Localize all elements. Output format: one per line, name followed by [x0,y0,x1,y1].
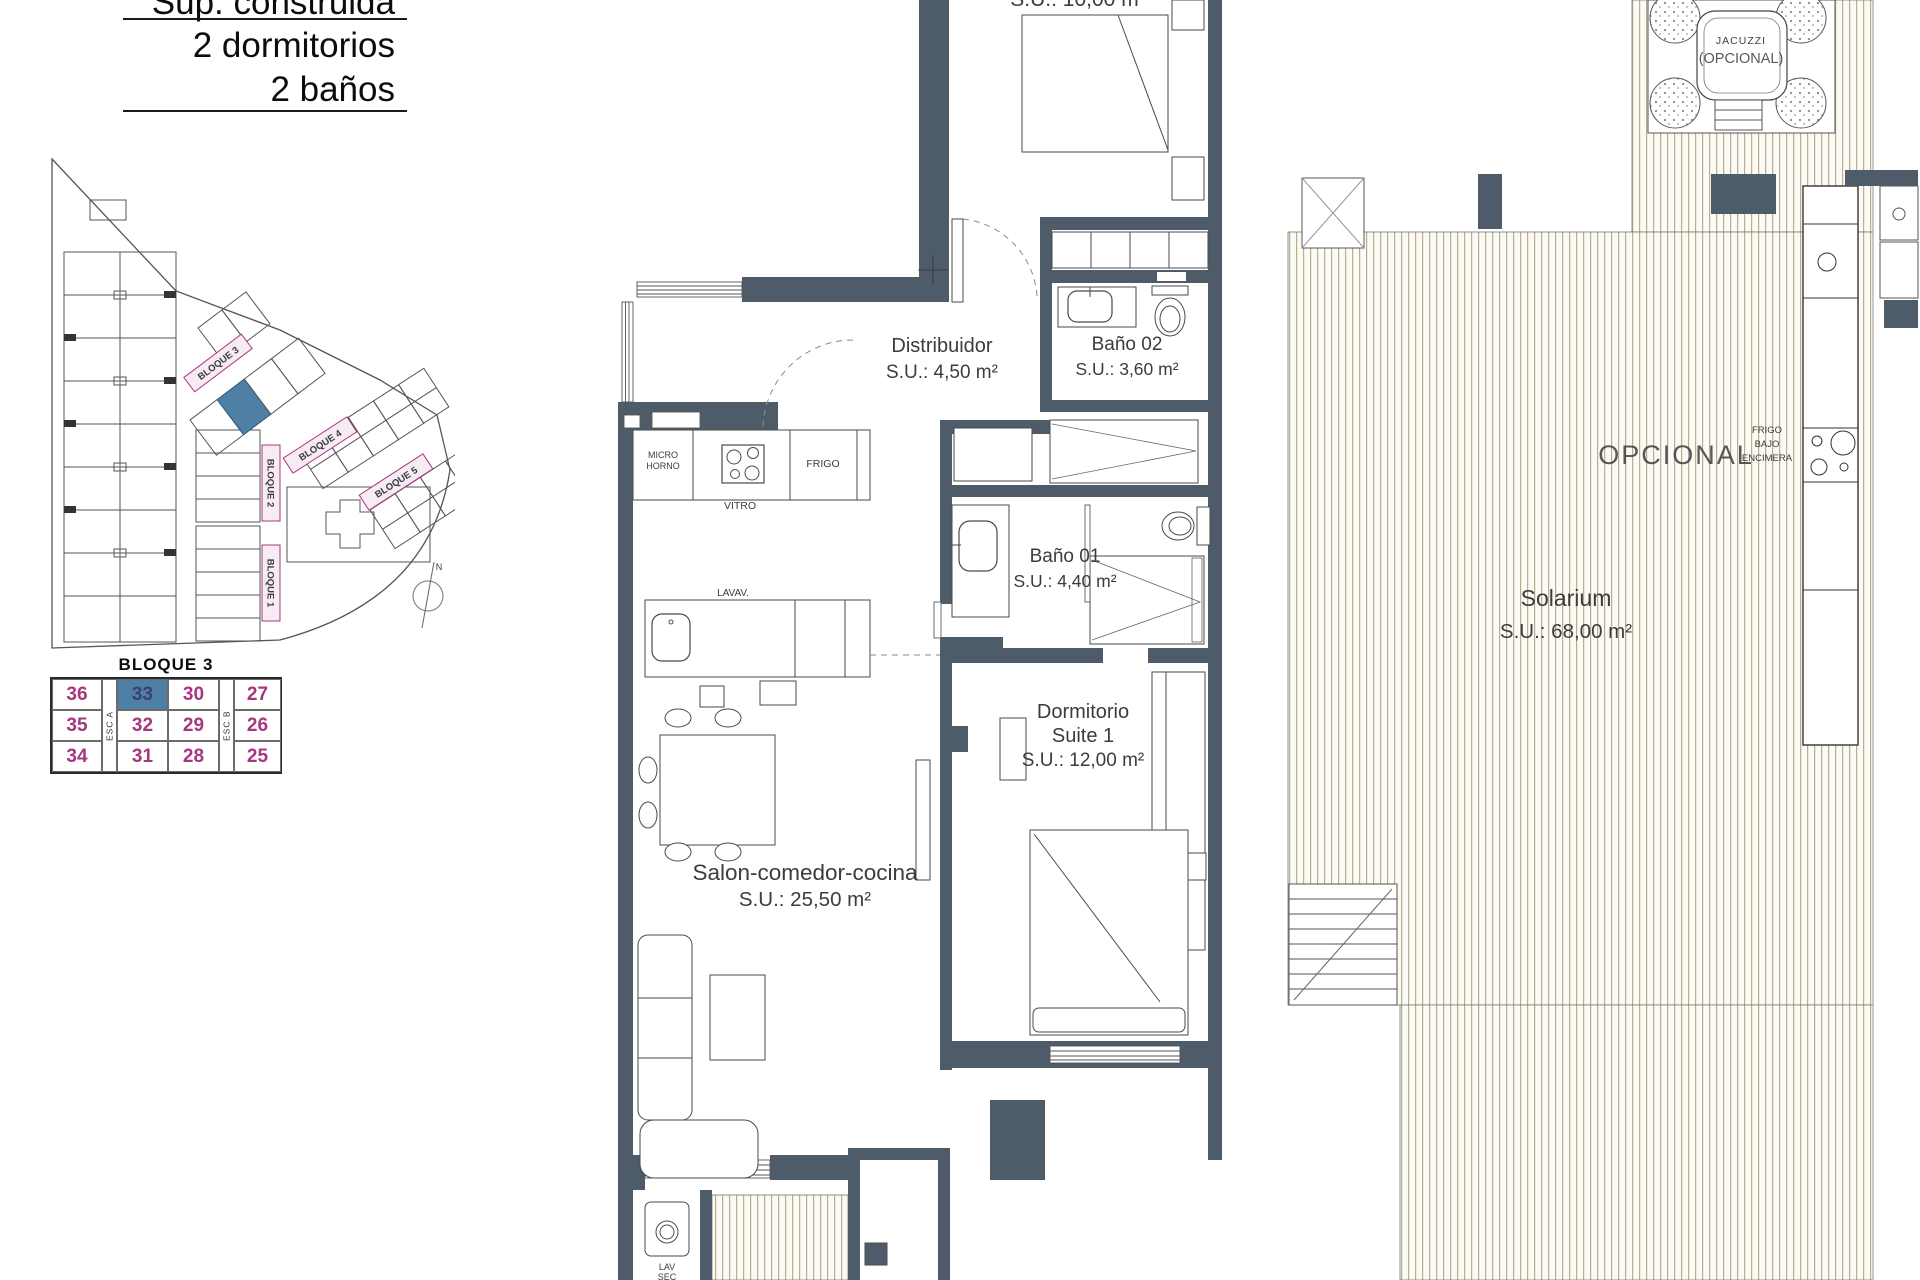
solarium-kitchenette [1803,186,1858,745]
sofa [638,935,692,1120]
label-suite-line2: Suite 1 [1052,725,1114,747]
bloque4-tag: BLOQUE 4 [283,417,357,473]
label-suite-line1: Dormitorio [1037,701,1129,723]
label-jacuzzi-opcional: (OPCIONAL) [1699,51,1784,67]
terrace-deck [712,1195,848,1280]
bathroom1-toilet [1162,507,1210,545]
bed-double [1022,0,1204,200]
entry-door-leaf [952,219,963,302]
label-frigo-bajo-3: ENCIMERA [1742,453,1793,464]
unit-26: 26 [234,710,281,741]
unit-36: 36 [52,679,102,710]
bloque5-tag: BLOQUE 5 [359,454,433,510]
label-solarium: Solarium [1521,585,1612,611]
dining-table [639,709,775,861]
label-frigo: FRIGO [806,458,839,470]
unit-table-grid: 36 ESC A 33 30 ESC B 27 35 32 29 26 34 3… [50,677,282,774]
tv-bench [916,760,930,880]
label-horno: HORNO [646,461,680,471]
jacuzzi-plant-icon [1650,78,1700,128]
label-jacuzzi: JACUZZI [1716,35,1766,47]
jacuzzi-steps [1715,100,1762,130]
bathroom2-sink [1058,287,1136,327]
bathrooms-line: 2 baños [87,70,395,110]
bedrooms-line: 2 dormitorios [87,26,395,66]
unit-34: 34 [52,741,102,772]
shaft-block [990,1100,1045,1180]
solarium-right-strip [1873,0,1918,1280]
label-solarium-area: S.U.: 68,00 m² [1500,620,1632,643]
kitchen-island [645,600,870,707]
label-frigo-bajo-1: FRIGO [1752,425,1782,436]
label-bano01: Baño 01 [1030,546,1101,567]
washer-icon [645,1202,689,1256]
suite-door-leaf [934,602,941,638]
wardrobe [1052,232,1208,268]
label-distribuidor: Distribuidor [891,335,992,357]
unit-33-highlighted: 33 [117,679,168,710]
label-vitro: VITRO [724,500,756,512]
label-bedroom2-area: S.U.: 10,00 m² [1010,0,1145,11]
svg-text:N: N [436,562,443,572]
coffee-table [710,975,765,1060]
skylight-hatch [1302,178,1364,248]
chaise [640,1120,758,1178]
unit-table-title: BLOQUE 3 [50,655,282,675]
nightstand [1172,157,1204,200]
compass-icon: N [413,562,443,628]
unit-29: 29 [168,710,219,741]
unit-25: 25 [234,741,281,772]
label-distribuidor-area: S.U.: 4,50 m² [886,362,998,383]
hall-closet [954,420,1198,483]
bloque2-tag: BLOQUE 2 [262,445,280,521]
unit-35: 35 [52,710,102,741]
solarium-stairs [1289,884,1397,1005]
suite-bed [1030,830,1188,1035]
label-salon: Salon-comedor-cocina [692,860,918,885]
site-plan: BLOQUE 3 BLOQUE 2 BLOQUE 1 BLOQUE 4 BLOQ… [40,120,455,680]
label-sec: SEC [658,1272,677,1280]
floorplan-page: { "header": { "title_clipped": "Sup. con… [0,0,1920,1280]
bathrooms-underline [123,110,407,112]
unit-31: 31 [117,741,168,772]
stair-a-label: ESC A [102,679,117,772]
label-frigo-bajo-2: BAJO [1755,439,1780,450]
label-bano02-area: S.U.: 3,60 m² [1075,359,1178,379]
unit-table: BLOQUE 3 36 ESC A 33 30 ESC B 27 35 32 2… [50,655,282,774]
label-micro: MICRO [648,450,678,460]
svg-text:BLOQUE 1: BLOQUE 1 [265,559,276,608]
unit-28: 28 [168,741,219,772]
label-bano01-area: S.U.: 4,40 m² [1013,571,1116,591]
solarium-deck [712,0,1873,1280]
bathroom1-sink [952,505,1009,617]
label-lav: LAV [659,1262,675,1272]
title-underline [123,18,407,20]
rowhouse-strip-west [64,200,176,642]
bloque-labels: BLOQUE 3 BLOQUE 2 BLOQUE 1 BLOQUE 4 BLOQ… [184,334,433,621]
unit-32: 32 [117,710,168,741]
highlighted-unit-33 [217,379,271,435]
bathroom2-toilet [1152,286,1188,336]
rowhouse-strip-middle [196,430,260,641]
label-suite-area: S.U.: 12,00 m² [1022,750,1145,771]
store-shaft [865,1243,887,1265]
bloque1-tag: BLOQUE 1 [262,545,280,621]
label-lavav: LAVAV. [717,588,749,599]
unit-30: 30 [168,679,219,710]
label-salon-area: S.U.: 25,50 m² [739,888,871,911]
stair-b-label: ESC B [219,679,234,772]
bloque3-units [190,338,325,455]
label-opcional: OPCIONAL [1598,440,1754,470]
unit-27: 27 [234,679,281,710]
kitchenette-burner-icon [1818,253,1836,271]
svg-text:BLOQUE 2: BLOQUE 2 [265,459,276,508]
kitchenette-sink-icon [1831,431,1855,455]
label-bano02: Baño 02 [1092,334,1163,355]
community-building [287,487,430,562]
apartment-plan: S.U.: 10,00 m² Distribuidor S.U.: 4,50 m… [600,0,1920,1280]
